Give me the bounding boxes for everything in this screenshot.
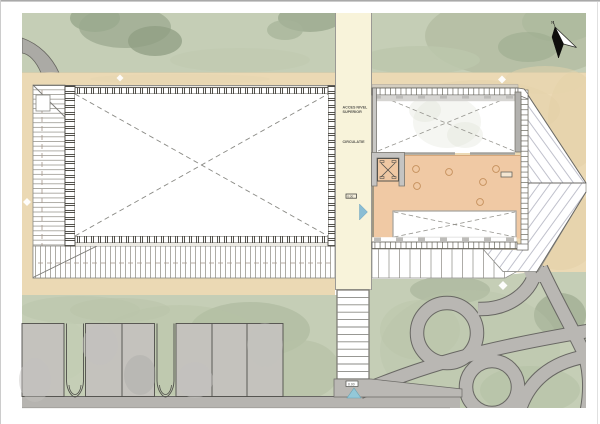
svg-text:ACCES NIVEL: ACCES NIVEL	[343, 105, 369, 109]
svg-text:0.00: 0.00	[347, 195, 353, 199]
svg-text:0.00: 0.00	[348, 383, 355, 387]
svg-text:SUPERIOR: SUPERIOR	[343, 110, 363, 114]
svg-text:CIRCULATIE: CIRCULATIE	[343, 140, 366, 144]
